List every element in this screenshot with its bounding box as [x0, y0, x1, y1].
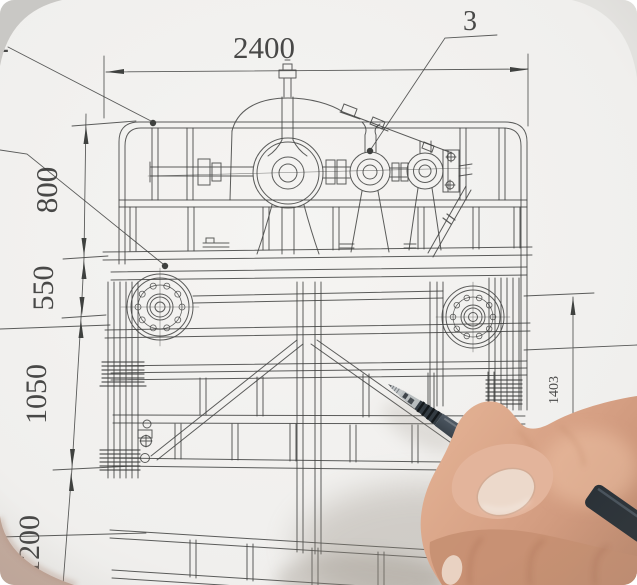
photo-card: 2400 3 2 800 550 1050 1200 1403: [0, 0, 637, 585]
photo-vignette: [0, 0, 637, 585]
technical-drawing-photo: 2400 3 2 800 550 1050 1200 1403: [0, 0, 637, 585]
